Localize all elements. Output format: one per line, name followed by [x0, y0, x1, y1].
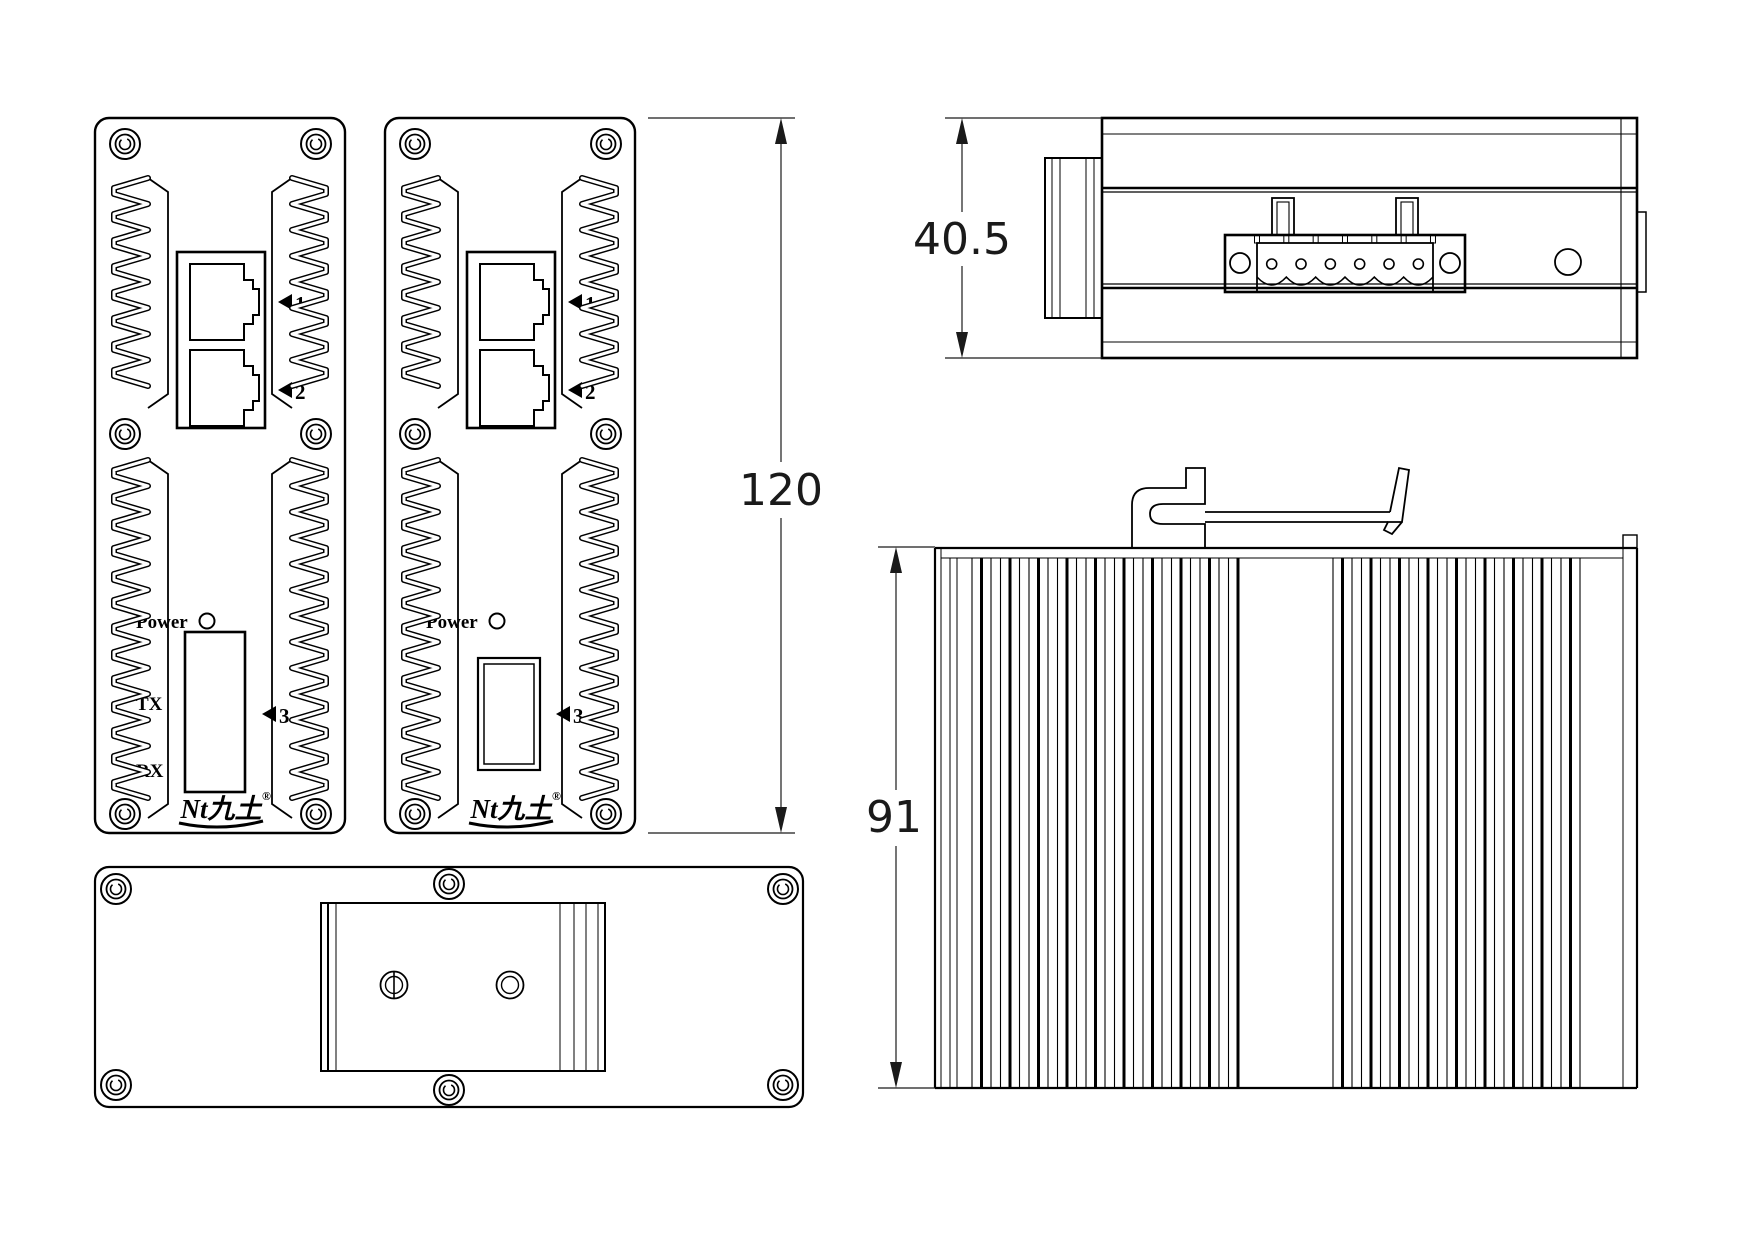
din-mount-plate	[321, 903, 605, 1071]
brand-logo: Nt九土 ®	[469, 789, 561, 827]
mounting-tab-inner	[1401, 202, 1413, 235]
front-block	[1045, 158, 1102, 318]
arrowhead-up-icon	[956, 118, 968, 144]
dimension-top-width: 40.5	[913, 118, 1102, 358]
back-view	[95, 867, 803, 1107]
port3-label: 3	[573, 704, 584, 728]
fiber-port	[185, 632, 245, 792]
heatsink-fins-side	[972, 558, 1580, 1088]
arrowhead-up-icon	[890, 547, 902, 573]
plate-screw-slotted	[381, 972, 408, 999]
fin-strip	[562, 460, 616, 818]
dim-91-text: 91	[866, 792, 922, 843]
screw-icon	[434, 1075, 464, 1105]
cad-drawing: 1 2 Power TX RX 3 Nt九土 ® 1 2 Power 3	[0, 0, 1754, 1241]
din-rail-clip	[1132, 468, 1409, 548]
sfp-port-inner	[484, 664, 534, 764]
screw-icon	[301, 129, 331, 159]
dim-120-text: 120	[739, 465, 823, 516]
terminal-screw-hole	[1230, 253, 1250, 273]
port3-label: 3	[279, 704, 290, 728]
terminal-pin	[1296, 259, 1306, 269]
terminal-block-connector	[1225, 198, 1465, 292]
clip-hook	[1132, 468, 1205, 548]
port3-arrow-icon	[556, 706, 570, 722]
screw-icon	[591, 129, 621, 159]
rj45-jack	[480, 264, 549, 340]
screw-icon	[768, 1070, 798, 1100]
mounting-tab-inner	[1277, 202, 1289, 235]
screw-icon	[400, 419, 430, 449]
rj45-jack	[190, 350, 259, 426]
registered-mark: ®	[552, 789, 561, 803]
screw-icon	[101, 1070, 131, 1100]
fin-strip	[404, 460, 458, 818]
terminal-pin	[1413, 259, 1423, 269]
top-view	[1045, 118, 1646, 358]
power-led-icon	[490, 614, 505, 629]
sfp-port	[478, 658, 540, 770]
side-view	[935, 468, 1637, 1088]
screw-icon	[400, 129, 430, 159]
registered-mark: ®	[262, 789, 271, 803]
top-body-outline	[1102, 118, 1637, 358]
terminal-pin	[1325, 259, 1335, 269]
plate-screw	[497, 972, 524, 999]
arrowhead-down-icon	[956, 332, 968, 358]
mounting-tab	[1272, 198, 1294, 235]
side-tab	[1637, 212, 1646, 292]
logo-text: Nt九土	[180, 794, 263, 824]
logo-text: Nt九土	[470, 794, 553, 824]
screw-icon	[591, 799, 621, 829]
terminal-pin	[1384, 259, 1394, 269]
hole-inner	[502, 977, 519, 994]
screw-icon	[591, 419, 621, 449]
mounting-tab	[1396, 198, 1418, 235]
rj45-jack	[480, 350, 549, 426]
terminal-screw-hole	[1440, 253, 1460, 273]
screw-icon	[301, 799, 331, 829]
port3-arrow-icon	[262, 706, 276, 722]
terminal-inner	[1257, 243, 1433, 292]
screw-icon	[434, 869, 464, 899]
arrowhead-down-icon	[775, 807, 787, 833]
drawing-canvas: 1 2 Power TX RX 3 Nt九土 ® 1 2 Power 3	[0, 0, 1754, 1241]
side-top-notch	[1623, 535, 1637, 548]
brand-logo: Nt九土 ®	[179, 789, 271, 827]
fin-strip	[114, 178, 168, 408]
screw-icon	[110, 799, 140, 829]
terminal-pin	[1267, 259, 1277, 269]
screw-icon	[110, 419, 140, 449]
screw-icon	[400, 799, 430, 829]
screw-icon	[101, 874, 131, 904]
dimension-side-height: 91	[866, 547, 935, 1088]
arrowhead-up-icon	[775, 118, 787, 144]
power-led-icon	[200, 614, 215, 629]
hole-outer	[497, 972, 524, 999]
rj45-jack	[190, 264, 259, 340]
terminal-pin	[1355, 259, 1365, 269]
clip-release-lever	[1384, 468, 1409, 534]
screw-icon	[768, 874, 798, 904]
dim-40-5-text: 40.5	[913, 214, 1011, 265]
dimension-front-height: 120	[648, 118, 823, 833]
screw-icon	[301, 419, 331, 449]
fin-strip	[272, 460, 326, 818]
screw-icon	[110, 129, 140, 159]
ground-hole	[1555, 249, 1581, 275]
fin-strip	[404, 178, 458, 408]
arrowhead-down-icon	[890, 1062, 902, 1088]
